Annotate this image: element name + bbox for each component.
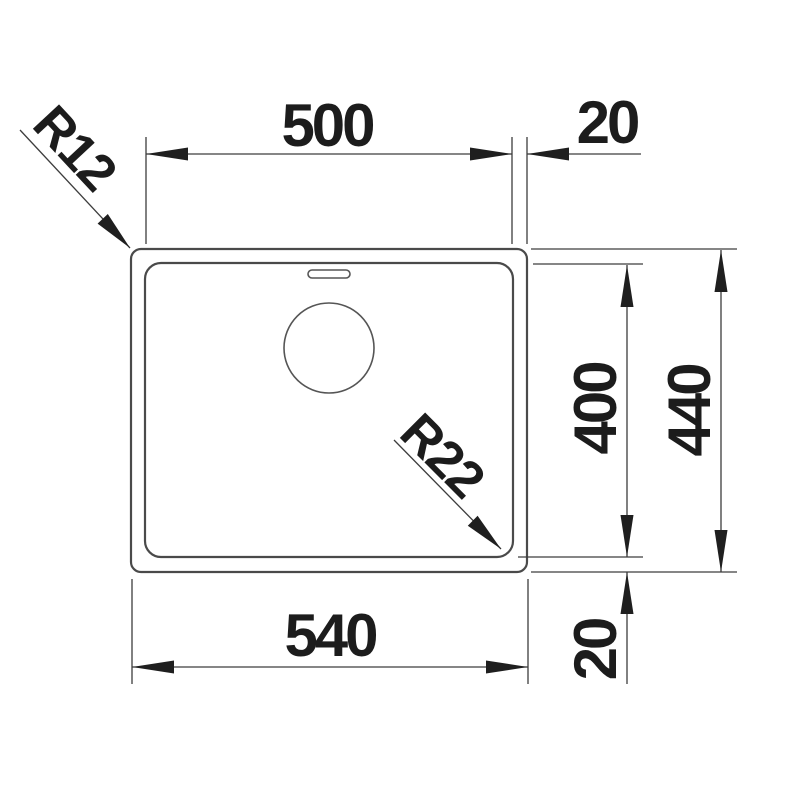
sink-outer-rim-outline	[131, 249, 527, 572]
dimension-label-rim-right: 20	[577, 89, 638, 156]
drawing-canvas: 500 20 400 440 540 20 R12 R22	[0, 0, 800, 800]
dimension-label-outer-width: 540	[284, 602, 376, 669]
dimension-label-radius-inner: R22	[389, 403, 495, 509]
drain-hole	[284, 303, 374, 393]
arrowhead-outer-height-top	[715, 250, 728, 292]
dimension-label-radius-outer: R12	[22, 95, 127, 202]
arrowhead-outer-width-right	[486, 661, 528, 674]
dimension-label-rim-bottom: 20	[562, 619, 629, 680]
dimension-label-outer-height: 440	[656, 365, 723, 457]
arrowhead-radius-inner	[468, 516, 501, 549]
sink-inner-bowl-outline	[145, 263, 513, 557]
arrowhead-outer-width-left	[132, 661, 174, 674]
dimension-label-inner-height: 400	[562, 363, 629, 455]
overflow-slot	[308, 270, 350, 278]
arrowhead-radius-outer	[98, 214, 130, 248]
arrowhead-rim-bottom	[621, 572, 634, 614]
arrowhead-inner-height-top	[621, 265, 634, 307]
dimension-label-inner-width: 500	[281, 92, 373, 159]
arrowhead-inner-width-left	[146, 148, 188, 161]
arrowhead-outer-height-bottom	[715, 530, 728, 572]
dimension-drawing-svg: 500 20 400 440 540 20 R12 R22	[0, 0, 800, 800]
arrowhead-inner-width-right	[470, 148, 512, 161]
arrowhead-rim-right	[527, 148, 569, 161]
arrowhead-inner-height-bottom	[621, 515, 634, 557]
